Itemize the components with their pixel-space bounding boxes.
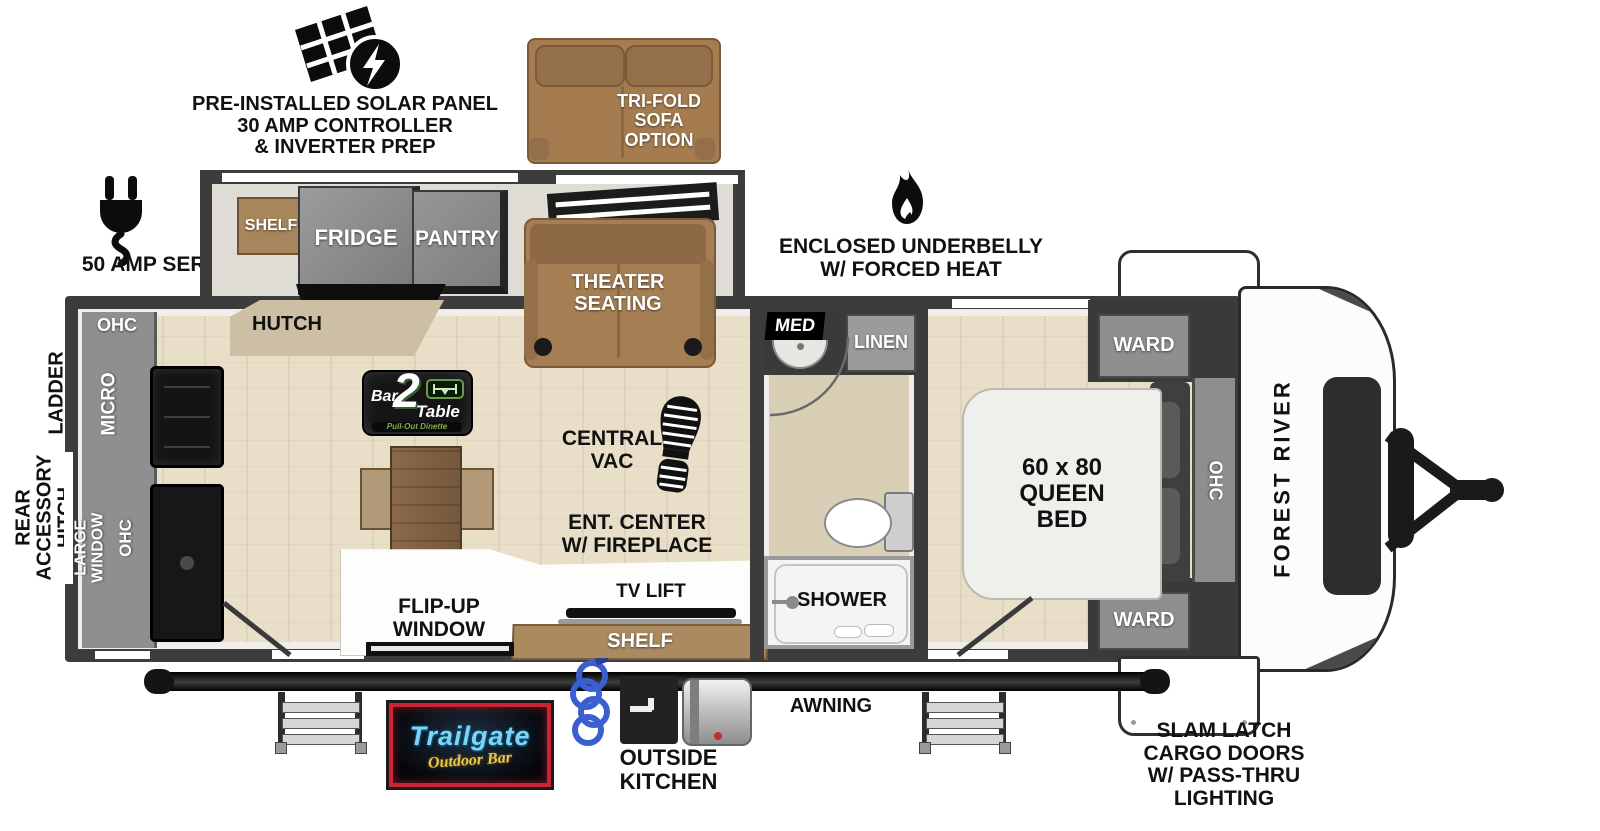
pantry: PANTRY (412, 190, 508, 294)
cargo-doors-label: SLAM LATCH CARGO DOORS W/ PASS-THRU LIGH… (1124, 720, 1324, 811)
flip-up-window-label: FLIP-UP WINDOW (378, 596, 500, 641)
pullout-dinette-icon (426, 379, 464, 399)
front-cap: FOREST RIVER (1238, 286, 1396, 672)
bar2table-logo: Bar 2 Table Pull-Out Dinette (362, 370, 473, 436)
fridge: FRIDGE (298, 186, 420, 295)
queen-bed: 60 x 80 QUEEN BED (962, 388, 1162, 600)
front-cap-window (1323, 377, 1381, 595)
wardrobe-bottom: WARD (1098, 592, 1190, 650)
ent-shelf-label: SHELF (607, 631, 673, 653)
hitch-a-frame (1380, 420, 1505, 565)
tv-lift-bar (566, 608, 736, 618)
outside-kitchen-unit (620, 676, 678, 744)
large-window-label: LARGE WINDOW (73, 513, 107, 583)
trailgate-name: Trailgate (409, 721, 530, 752)
entry-steps (272, 692, 368, 754)
flame-icon (884, 168, 932, 234)
shelf-label: SHELF (245, 217, 297, 234)
cooktop (150, 366, 224, 468)
solar-callout-label: PRE-INSTALLED SOLAR PANEL 30 AMP CONTROL… (185, 94, 505, 159)
dinette-table (360, 446, 492, 558)
ohc-top-label: OHC (86, 316, 148, 335)
linen-cabinet: LINEN (846, 314, 916, 372)
outside-kitchen-tank (682, 678, 752, 746)
ohc-side-label: OHC (117, 519, 135, 557)
shower: SHOWER (764, 556, 914, 649)
fridge-label: FRIDGE (314, 226, 397, 250)
bar2table-table: Table (416, 402, 460, 422)
trifold-sofa-label: TRI-FOLD SOFA OPTION (607, 92, 711, 150)
bedroom-ohc-label: OHC (1206, 460, 1225, 500)
ent-center-label: ENT. CENTER W/ FIREPLACE (548, 512, 726, 557)
ent-shelf: SHELF (511, 624, 768, 660)
trifold-sofa-option: TRI-FOLD SOFA OPTION (527, 38, 721, 164)
bedroom-top-window (952, 299, 1090, 308)
floorplan-canvas: PRE-INSTALLED SOLAR PANEL 30 AMP CONTROL… (0, 0, 1600, 831)
med-label: MED (774, 316, 816, 335)
bedroom-ohc: OHC (1192, 378, 1235, 582)
hutch-label: HUTCH (252, 314, 348, 336)
med-cabinet: MED (765, 312, 826, 340)
shower-label: SHOWER (782, 590, 902, 612)
flip-up-window-frame (366, 642, 514, 656)
micro-label: MICRO (100, 372, 120, 435)
trailgate-tagline: Outdoor Bar (427, 749, 512, 773)
ward-bottom-label: WARD (1113, 610, 1174, 632)
awning-label: AWNING (772, 696, 890, 718)
entry-steps (916, 692, 1012, 754)
theater-seating: THEATER SEATING (524, 218, 716, 368)
wardrobe-top: WARD (1098, 314, 1190, 378)
brand-label: FOREST RIVER (1270, 380, 1293, 579)
bar2table-tagline: Pull-Out Dinette (372, 422, 462, 432)
ward-top-label: WARD (1113, 335, 1174, 357)
queen-bed-label: 60 x 80 QUEEN BED (1019, 455, 1104, 533)
water-hose-icon (556, 658, 626, 758)
tv-lift-label: TV LIFT (596, 582, 706, 603)
shelf-cabinet: SHELF (237, 197, 305, 255)
linen-label: LINEN (854, 333, 908, 352)
outside-kitchen-label: OUTSIDE KITCHEN (596, 746, 741, 794)
kitchen-sink-unit (150, 484, 224, 642)
underbelly-label: ENCLOSED UNDERBELLY W/ FORCED HEAT (755, 236, 1067, 281)
solar-panel-icon (283, 0, 408, 96)
theater-seating-label: THEATER SEATING (548, 272, 688, 315)
toilet (824, 498, 892, 548)
slideout-window (222, 173, 518, 182)
pantry-label: PANTRY (415, 228, 499, 251)
trailgate-logo: Trailgate Outdoor Bar (386, 700, 554, 790)
